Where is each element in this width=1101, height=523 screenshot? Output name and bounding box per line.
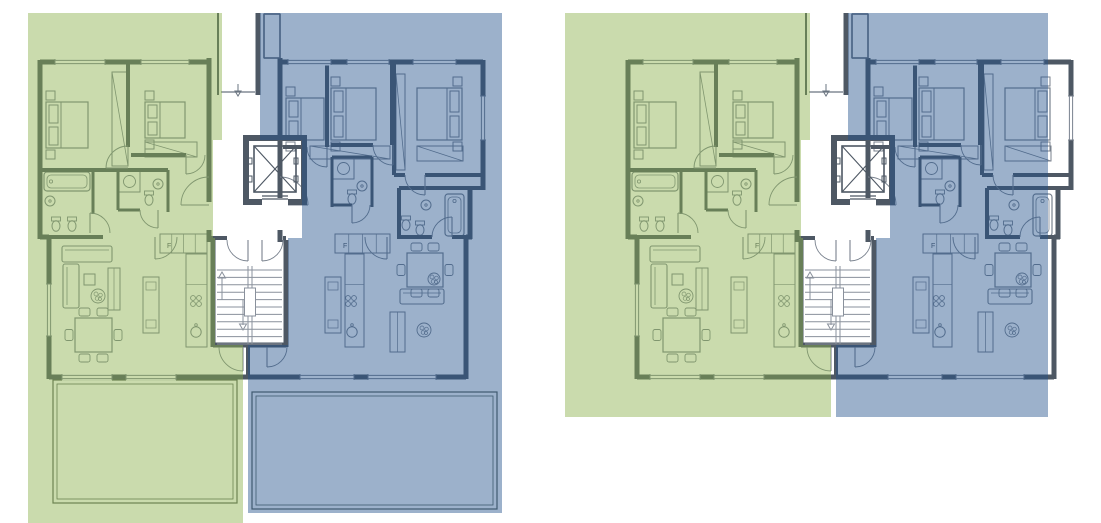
floor-plans-page: FFFF <box>0 0 1101 523</box>
floor-plans-canvas: FFFF <box>0 0 1101 523</box>
upper-floor-plan: FF <box>565 0 1101 417</box>
unit-overlays <box>565 13 1048 417</box>
unit-a-overlay <box>565 13 831 417</box>
unit-b-overlay <box>836 13 1048 417</box>
unit-a-overlay <box>28 13 243 523</box>
unit-overlays <box>28 13 502 523</box>
lower-floor-plan: FF <box>0 0 502 523</box>
staircase <box>217 266 282 344</box>
staircase <box>805 266 870 344</box>
